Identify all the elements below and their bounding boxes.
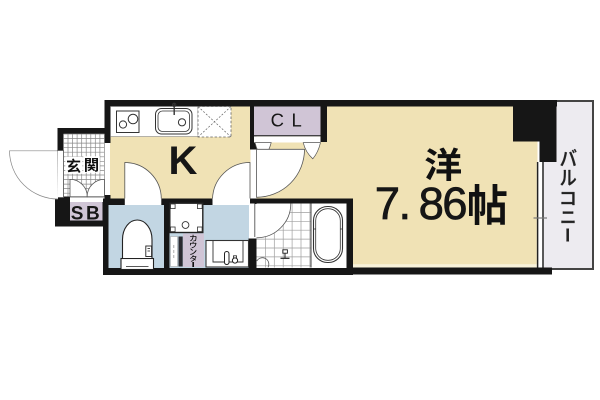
svg-text:C: C <box>271 110 284 131</box>
svg-text:6: 6 <box>442 178 467 229</box>
svg-text:.: . <box>399 178 412 229</box>
svg-text:L: L <box>292 110 302 131</box>
svg-text:8: 8 <box>419 178 444 229</box>
svg-text:K: K <box>169 139 198 183</box>
svg-text:SB: SB <box>71 204 102 225</box>
svg-text:7: 7 <box>375 178 400 229</box>
